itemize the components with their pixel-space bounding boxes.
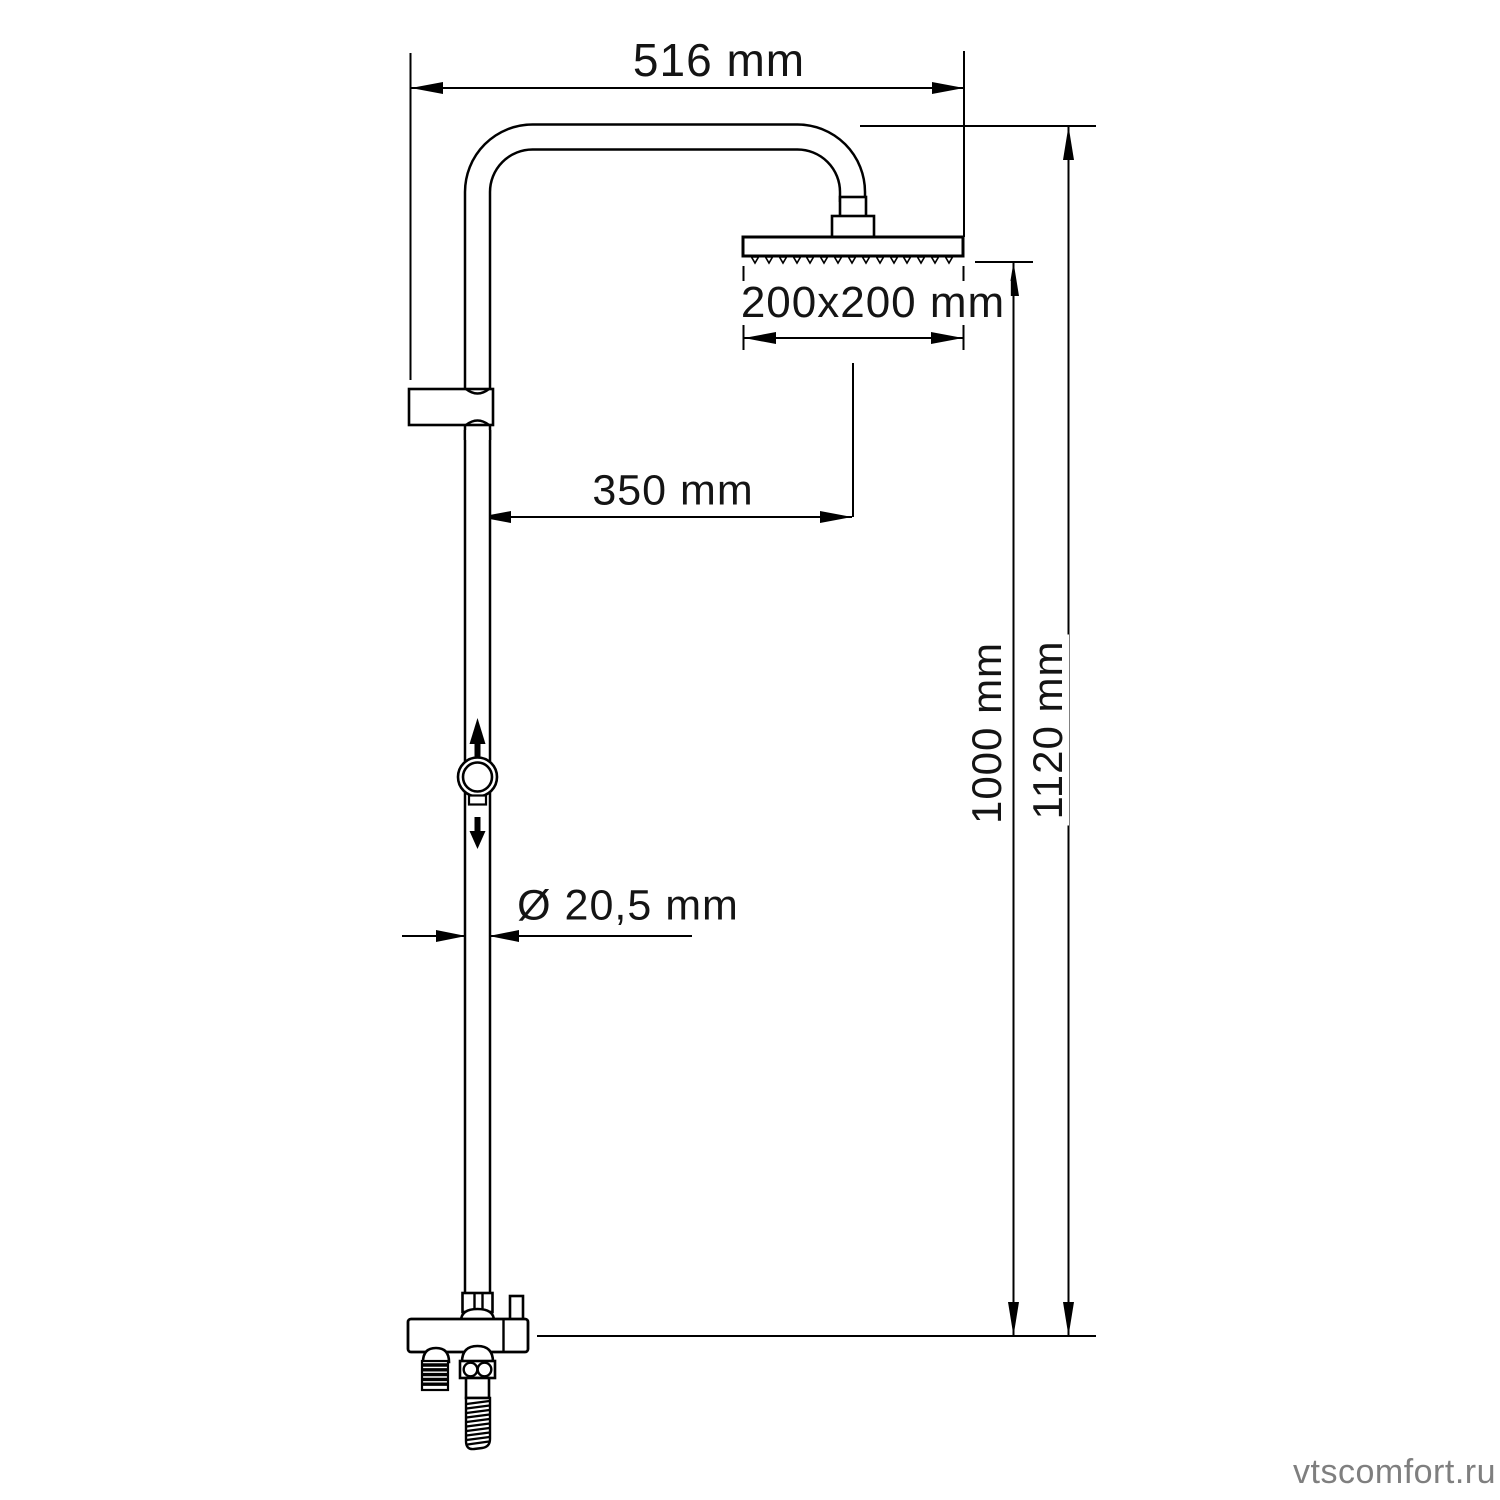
outlet-shoulder xyxy=(462,1346,493,1362)
shower-hose xyxy=(466,1398,490,1449)
slider-tab xyxy=(469,796,486,805)
head-nozzles xyxy=(752,257,953,263)
drawing-page: 516 mm 200x200 mm 350 mm Ø 20,5 mm 1000 … xyxy=(0,0,1500,1500)
dimension-516 xyxy=(411,51,965,380)
wall-bracket xyxy=(409,389,493,425)
head-connector-lower xyxy=(832,216,874,238)
dimension-label-head-offset: 350 mm xyxy=(586,470,759,513)
hand-shower-outlet xyxy=(460,1361,495,1398)
dimension-label-head-size: 200x200 mm xyxy=(735,281,1011,325)
overhead-shower-head xyxy=(743,197,963,263)
dimension-label-riser-height: 1000 mm xyxy=(966,636,1008,830)
dimension-label-pipe-diameter: Ø 20,5 mm xyxy=(511,885,745,928)
head-plate xyxy=(743,237,963,256)
water-inlet-thread xyxy=(422,1361,448,1390)
diverter-knob-stub xyxy=(510,1296,523,1320)
technical-drawing xyxy=(0,0,1500,1500)
watermark: vtscomfort.ru xyxy=(1293,1453,1496,1492)
dimension-label-arm-reach: 516 mm xyxy=(627,37,811,83)
dimension-label-overall-height: 1120 mm xyxy=(1027,635,1069,826)
diverter-assembly xyxy=(408,1293,528,1449)
